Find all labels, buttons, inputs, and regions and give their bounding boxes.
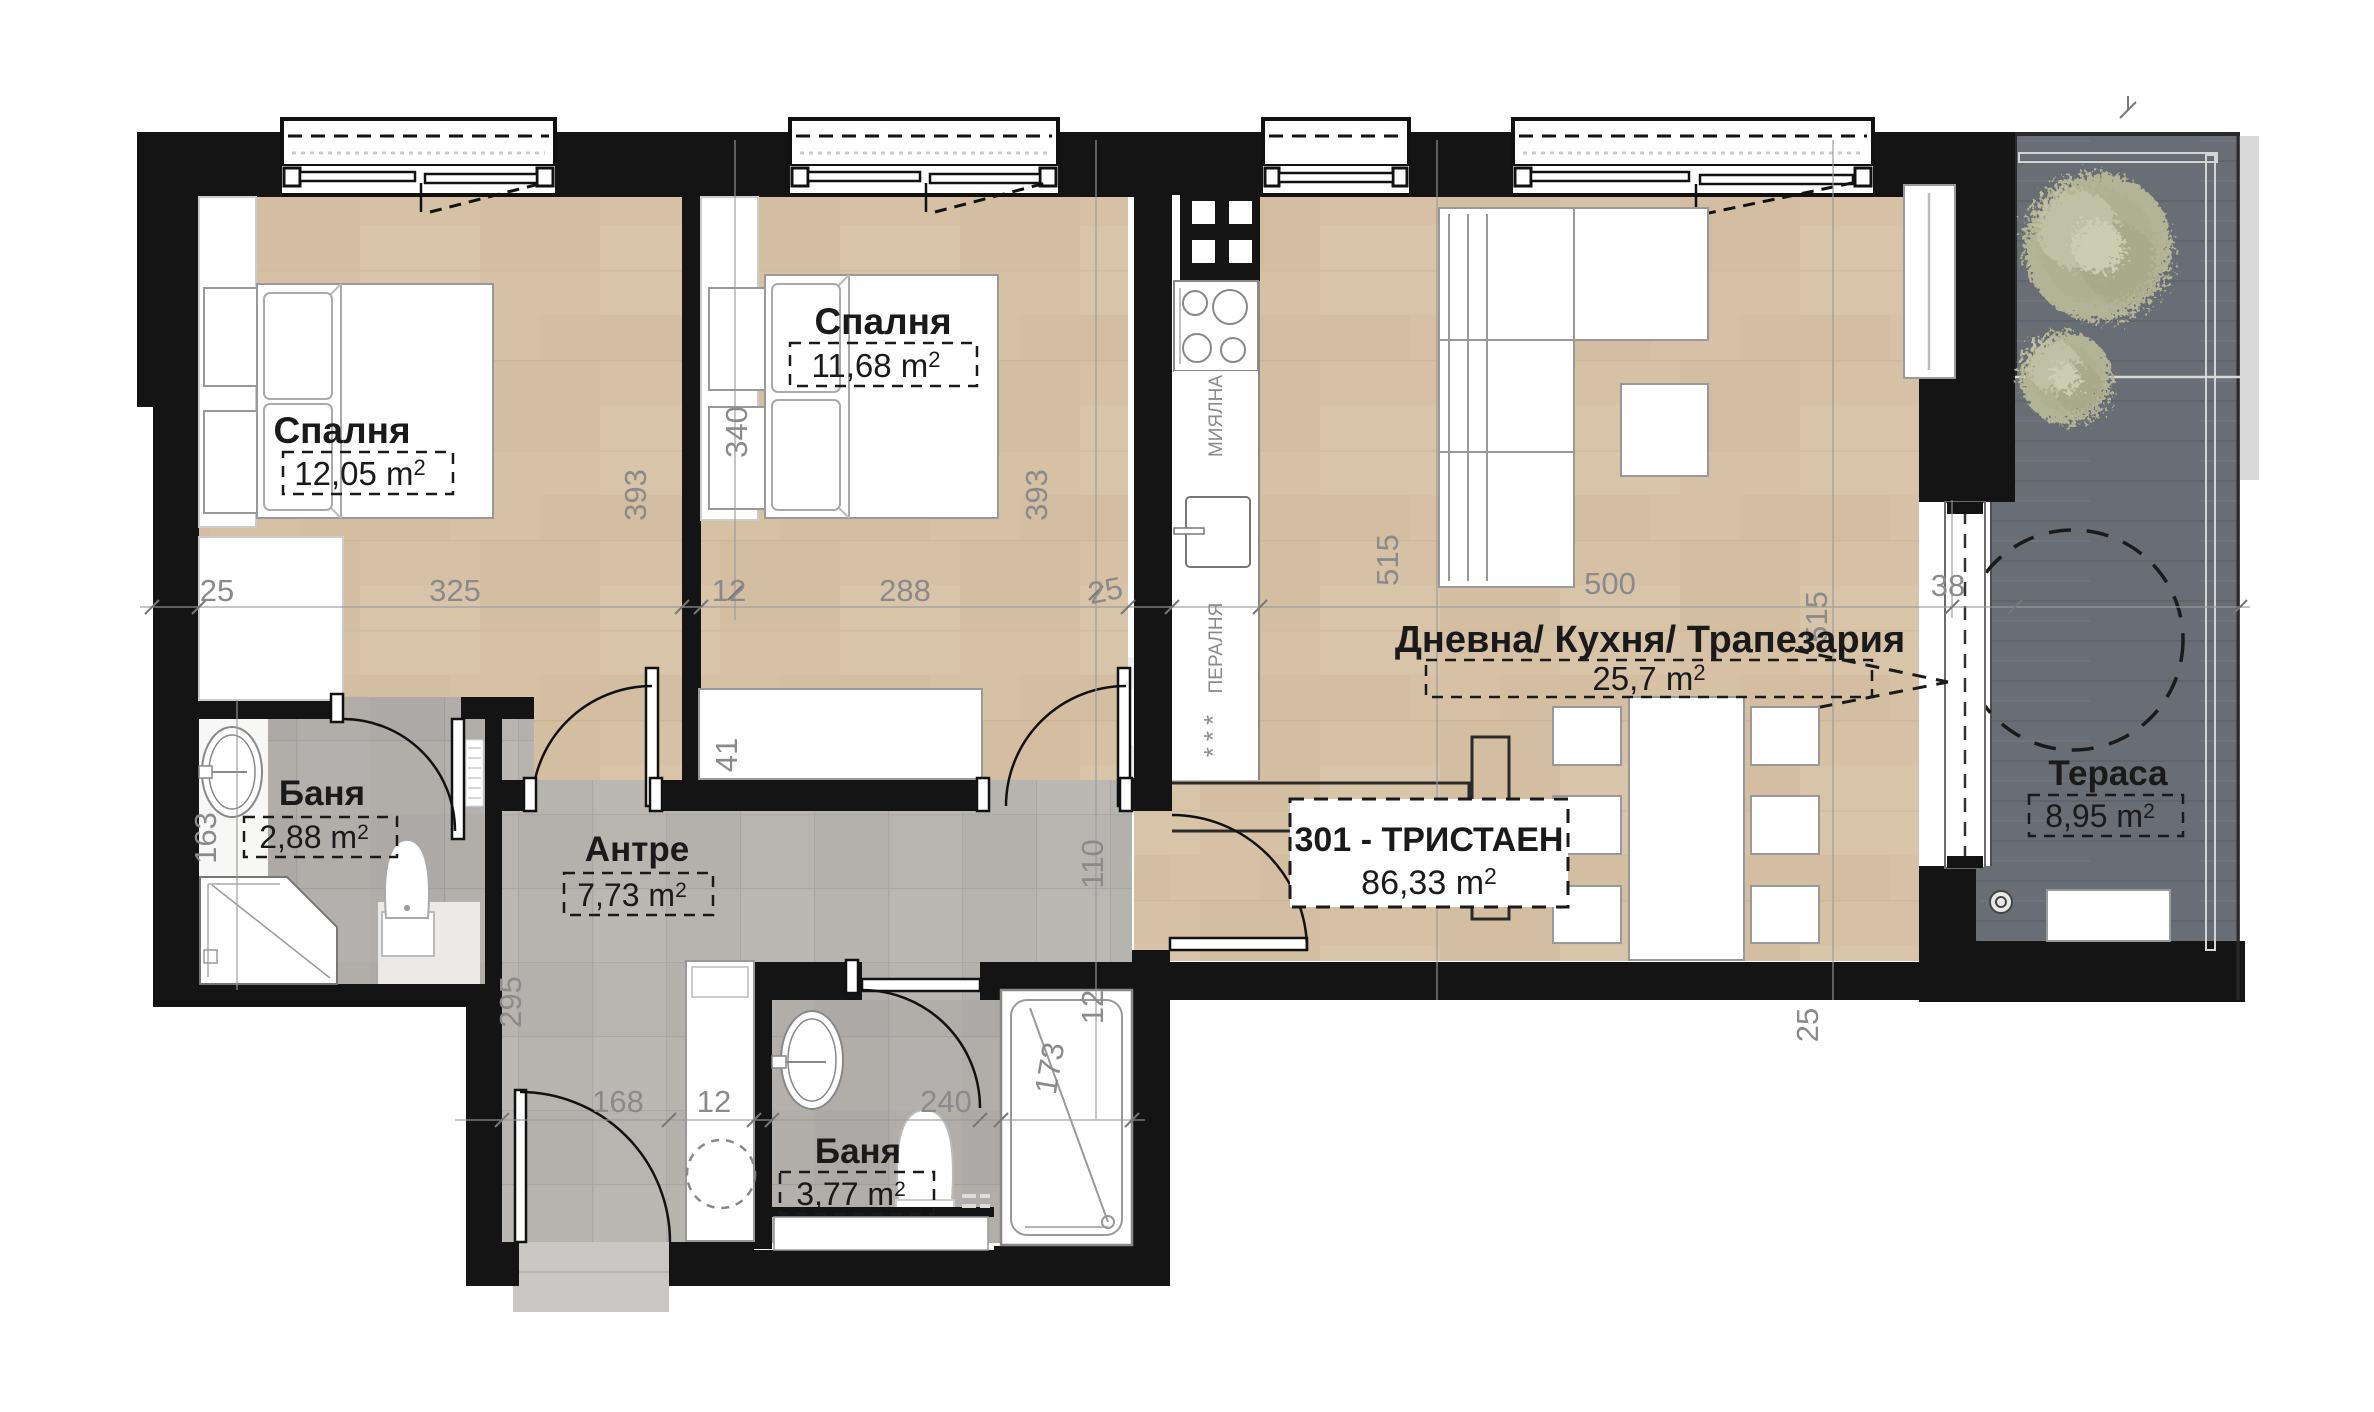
svg-text:500: 500: [1584, 566, 1636, 601]
svg-text:393: 393: [618, 469, 653, 521]
svg-text:Антре: Антре: [585, 830, 689, 869]
svg-text:12,05 m2: 12,05 m2: [294, 455, 426, 492]
svg-text:Баня: Баня: [279, 774, 365, 813]
svg-text:515: 515: [1370, 534, 1405, 586]
svg-text:301 - ТРИСТАЕН: 301 - ТРИСТАЕН: [1295, 821, 1564, 859]
svg-text:25: 25: [1790, 1008, 1825, 1042]
svg-text:Тераса: Тераса: [2048, 754, 2168, 793]
svg-text:12: 12: [697, 1084, 731, 1119]
svg-text:***: ***: [1198, 709, 1228, 757]
svg-text:8,95 m2: 8,95 m2: [2045, 798, 2155, 834]
svg-text:7,73 m2: 7,73 m2: [577, 877, 687, 913]
svg-text:11,68 m2: 11,68 m2: [811, 347, 940, 384]
svg-text:240: 240: [920, 1084, 972, 1119]
svg-text:12: 12: [1075, 990, 1110, 1024]
svg-text:Дневна/ Кухня/ Трапезария: Дневна/ Кухня/ Трапезария: [1395, 619, 1905, 661]
svg-text:340: 340: [719, 406, 754, 458]
svg-text:41: 41: [709, 738, 744, 772]
svg-text:25: 25: [1085, 570, 1126, 611]
svg-text:12: 12: [712, 573, 746, 608]
svg-text:Спалня: Спалня: [273, 410, 410, 451]
svg-text:168: 168: [592, 1084, 644, 1119]
svg-text:295: 295: [493, 976, 528, 1028]
svg-text:325: 325: [429, 573, 481, 608]
svg-text:Спалня: Спалня: [814, 301, 951, 342]
svg-text:3,77 m2: 3,77 m2: [796, 1176, 906, 1212]
svg-text:86,33 m2: 86,33 m2: [1361, 863, 1497, 902]
svg-text:Баня: Баня: [815, 1132, 901, 1171]
svg-text:38: 38: [1931, 568, 1965, 603]
svg-text:163: 163: [188, 812, 223, 864]
svg-text:25,7 m2: 25,7 m2: [1592, 660, 1705, 697]
svg-text:288: 288: [879, 573, 931, 608]
svg-text:110: 110: [1075, 839, 1110, 888]
svg-text:ПЕРАЛНЯ: ПЕРАЛНЯ: [1206, 603, 1227, 694]
svg-text:25: 25: [200, 573, 234, 608]
svg-text:2,88 m2: 2,88 m2: [259, 819, 369, 855]
svg-text:393: 393: [1019, 469, 1054, 521]
svg-text:МИЯЛНА: МИЯЛНА: [1206, 375, 1227, 457]
